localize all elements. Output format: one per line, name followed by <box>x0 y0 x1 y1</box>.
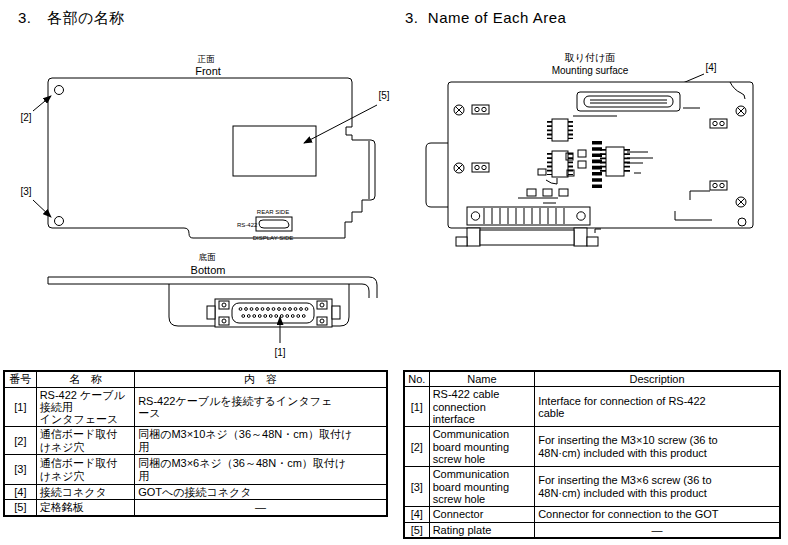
cell-name: RS-422 ケーブル 接続用 インタフェース <box>36 387 135 427</box>
rs422-marking: REAR SIDE RS-422 DISPLAY SIDE <box>237 209 293 241</box>
cell-no: [1] <box>4 387 36 427</box>
cell-no: [5] <box>4 500 36 516</box>
cell-desc: 同梱のM3×10ネジ（36～48N・cm）取付け 用 <box>135 427 387 455</box>
bottom-title-japanese: 底面 <box>199 252 217 262</box>
table-row: [3] Communication board mounting screw h… <box>404 467 780 507</box>
front-title-japanese: 正面 <box>198 54 216 64</box>
front-callouts: [2] [3] [5] <box>20 90 389 217</box>
mounting-board-outline <box>426 82 753 228</box>
callout-label-1: [1] <box>274 347 285 358</box>
cell-desc: RS-422ケーブルを接続するインタフェ ース <box>135 387 387 427</box>
cell-desc: Connector for connection to the GOT <box>535 507 780 522</box>
header-name: Name <box>429 371 535 387</box>
table-row: [1] RS-422 cable connection interface In… <box>404 387 780 427</box>
dsub-connector <box>207 299 340 327</box>
screw-hole-bottom-left <box>55 217 64 226</box>
terminal-strip <box>467 207 590 225</box>
table-row: [5] 定格銘板 ― <box>4 500 387 516</box>
cell-no: [2] <box>404 427 429 467</box>
table-header-row: No. Name Description <box>404 371 780 387</box>
cell-desc: — <box>535 522 780 538</box>
callout-arrow-5 <box>304 105 377 143</box>
callout-label-5: [5] <box>378 90 389 101</box>
cell-name: Rating plate <box>429 522 535 538</box>
front-title-english: Front <box>195 65 221 77</box>
header-desc: 内 容 <box>135 371 387 387</box>
plain-hole <box>738 218 746 226</box>
cell-no: [3] <box>404 467 429 507</box>
screw-icon <box>736 197 746 207</box>
header-no: No. <box>404 371 429 387</box>
table-row: [4] 接続コネクタ GOTへの接続コネクタ <box>4 485 387 500</box>
cell-desc: GOTへの接続コネクタ <box>135 485 387 500</box>
cell-no: [5] <box>404 522 429 538</box>
cell-name: 通信ボード取付 けネジ穴 <box>36 427 135 455</box>
display-side-label: DISPLAY SIDE <box>253 235 293 241</box>
cell-no: [3] <box>4 455 36 485</box>
table-row: [3] 通信ボード取付 けネジ穴 同梱のM3×6ネジ（36～48N・cm）取付け… <box>4 455 387 485</box>
callout-label-2: [2] <box>20 112 31 123</box>
section-heading-japanese: 3. 各部の名称 <box>18 9 125 28</box>
cell-desc: ― <box>135 500 387 516</box>
screw-icon <box>736 106 746 116</box>
cell-no: [2] <box>4 427 36 455</box>
callout-label-3: [3] <box>20 186 31 197</box>
mounting-title-english: Mounting surface <box>552 65 629 76</box>
table-row: [2] 通信ボード取付 けネジ穴 同梱のM3×10ネジ（36～48N・cm）取付… <box>4 427 387 455</box>
section-heading-english: 3. Name of Each Area <box>405 9 566 26</box>
header-desc: Description <box>535 371 780 387</box>
table-row: [5] Rating plate — <box>404 522 780 538</box>
cell-name: 定格銘板 <box>36 500 135 516</box>
screw-icon <box>454 163 464 173</box>
screw-icon <box>454 105 464 115</box>
callout-label-4: [4] <box>705 62 716 73</box>
front-and-bottom-view-diagram: 正面 Front [2] [3] [5] REAR SIDE RS-422 DI… <box>0 45 396 365</box>
cell-desc: For inserting the M3×10 screw (36 to 48N… <box>535 427 780 467</box>
bottom-title-english: Bottom <box>191 264 226 276</box>
cell-name: Communication board mounting screw hole <box>429 427 535 467</box>
cell-desc: Interface for connection of RS-422 cable <box>535 387 780 427</box>
cell-name: Communication board mounting screw hole <box>429 467 535 507</box>
cell-name: RS-422 cable connection interface <box>429 387 535 427</box>
table-row: [2] Communication board mounting screw h… <box>404 427 780 467</box>
screw-hole-top-left <box>55 86 64 95</box>
cell-name: Connector <box>429 507 535 522</box>
cell-desc: For inserting the M3×6 screw (36 to 48N·… <box>535 467 780 507</box>
parts-table-english: No. Name Description [1] RS-422 cable co… <box>403 370 781 539</box>
table-row: [4] Connector Connector for connection t… <box>404 507 780 522</box>
cell-desc: 同梱のM3×6ネジ（36～48N・cm）取付け 用 <box>135 455 387 485</box>
parts-table-japanese: 番号 名 称 内 容 [1] RS-422 ケーブル 接続用 インタフェース R… <box>3 370 388 517</box>
cell-no: [1] <box>404 387 429 427</box>
rear-side-label: REAR SIDE <box>257 209 289 215</box>
front-board-outline <box>48 78 375 238</box>
cell-no: [4] <box>404 507 429 522</box>
table-row: [1] RS-422 ケーブル 接続用 インタフェース RS-422ケーブルを接… <box>4 387 387 427</box>
mounting-surface-diagram: 取り付け面 Mounting surface [4] <box>396 45 788 365</box>
dsub-shell <box>232 303 314 323</box>
header-no: 番号 <box>4 371 36 387</box>
rs422-label: RS-422 <box>237 222 258 228</box>
cell-no: [4] <box>4 485 36 500</box>
header-name: 名 称 <box>36 371 135 387</box>
mounting-title-japanese: 取り付け面 <box>565 52 615 63</box>
manual-page: { "page": { "heading_jp": "3. 各部の名称", "h… <box>0 0 788 545</box>
rs422-connector-symbol-box <box>256 217 292 231</box>
rs422-connector-symbol <box>259 220 289 228</box>
cell-name: 接続コネクタ <box>36 485 135 500</box>
rating-plate-area <box>233 126 316 176</box>
bottom-legs-connector <box>456 228 598 246</box>
table-header-row: 番号 名 称 内 容 <box>4 371 387 387</box>
cell-name: 通信ボード取付 けネジ穴 <box>36 455 135 485</box>
